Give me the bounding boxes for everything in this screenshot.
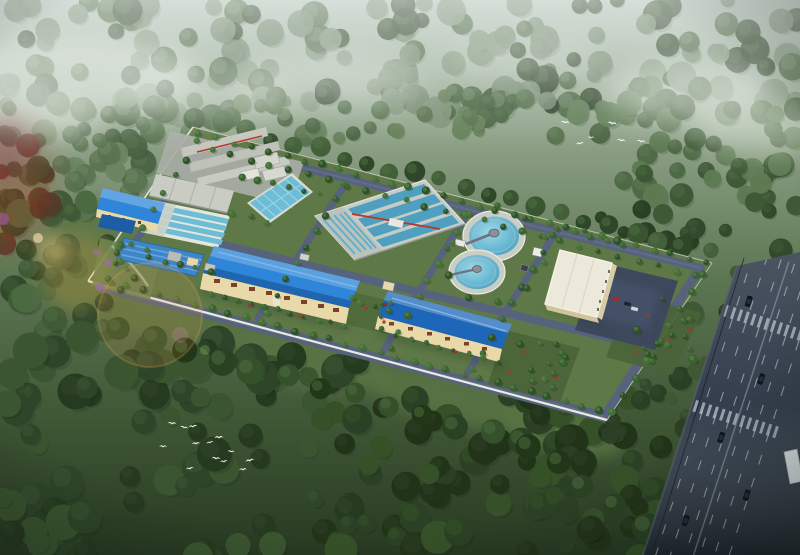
plant-aerial-rendering: Bird's-eye rendering of a wastewater tre… <box>0 0 800 555</box>
flare-spot <box>200 345 210 355</box>
cloud <box>235 52 425 108</box>
scene-canvas: Bird's-eye rendering of a wastewater tre… <box>0 0 800 555</box>
flare-spot <box>172 327 188 343</box>
flare-spot <box>33 233 43 243</box>
cloud <box>440 40 600 80</box>
